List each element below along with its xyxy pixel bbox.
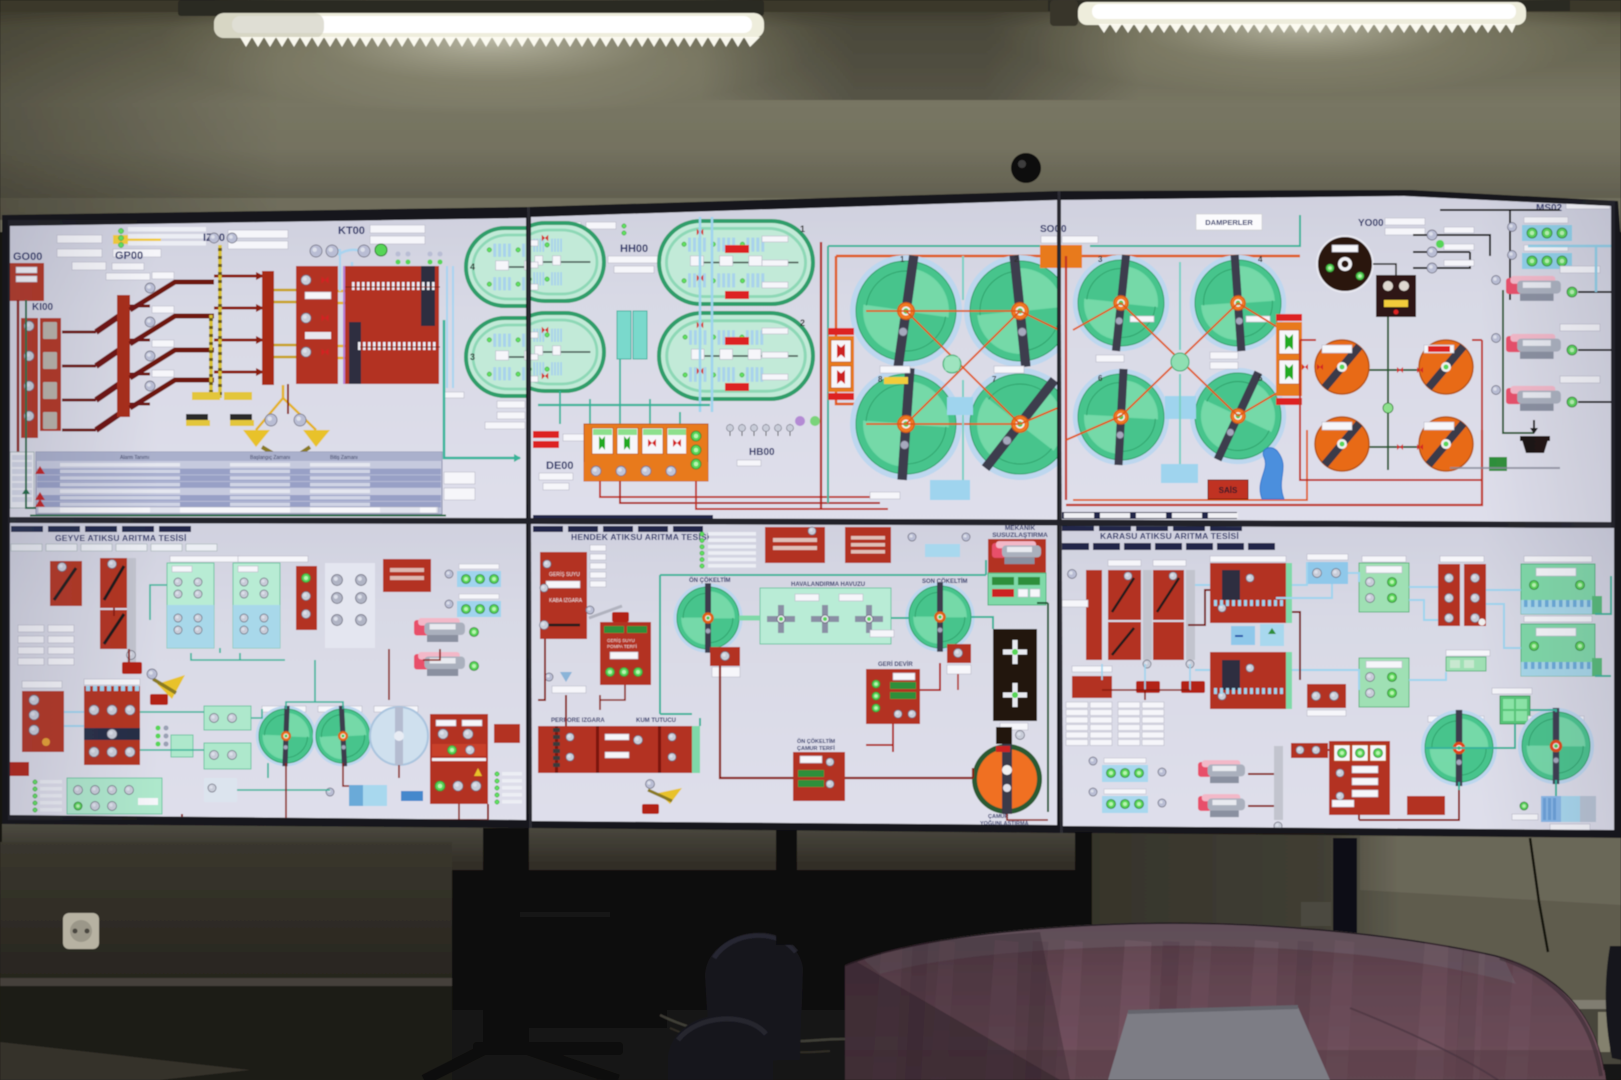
svg-text:KT00: KT00 <box>338 225 365 237</box>
svg-text:1: 1 <box>800 224 805 234</box>
svg-text:DE00: DE00 <box>546 460 574 472</box>
svg-text:SAİS: SAİS <box>1219 486 1238 495</box>
svg-text:6: 6 <box>1098 374 1103 383</box>
svg-text:KARASU ATIKSU ARITMA TESİSİ: KARASU ATIKSU ARITMA TESİSİ <box>1100 531 1239 541</box>
svg-text:YO00: YO00 <box>1358 218 1384 229</box>
svg-text:GERİŞ SUYU: GERİŞ SUYU <box>607 637 635 643</box>
svg-text:3: 3 <box>470 352 475 362</box>
svg-text:7: 7 <box>992 375 997 384</box>
svg-text:4: 4 <box>1258 255 1263 264</box>
svg-text:ÇAMUR TERFİ: ÇAMUR TERFİ <box>797 745 835 752</box>
svg-text:KUM TUTUCU: KUM TUTUCU <box>636 718 676 724</box>
svg-text:HAVALANDIRMA HAVUZU: HAVALANDIRMA HAVUZU <box>791 582 865 588</box>
svg-text:HH00: HH00 <box>620 243 648 255</box>
svg-text:2: 2 <box>1014 255 1019 264</box>
svg-text:SUSUZLAŞTIRMA: SUSUZLAŞTIRMA <box>992 532 1048 539</box>
svg-text:PERFORE IZGARA: PERFORE IZGARA <box>551 718 605 724</box>
svg-text:4: 4 <box>470 262 475 272</box>
svg-text:Başlangıç Zamanı: Başlangıç Zamanı <box>250 455 290 461</box>
svg-text:POMPA TERFİ: POMPA TERFİ <box>607 643 637 649</box>
svg-text:ÇAMUR: ÇAMUR <box>988 814 1008 820</box>
svg-text:Bitiş Zamanı: Bitiş Zamanı <box>330 455 358 461</box>
svg-text:ÖN ÇÖKELTİM: ÖN ÇÖKELTİM <box>797 738 836 745</box>
svg-text:GERİŞ SUYU: GERİŞ SUYU <box>549 571 580 578</box>
svg-text:HENDEK ATIKSU ARITMA TESİSİ: HENDEK ATIKSU ARITMA TESİSİ <box>571 532 709 542</box>
svg-text:GERİ DEVİR: GERİ DEVİR <box>878 661 913 668</box>
svg-text:8: 8 <box>878 375 883 384</box>
svg-text:3: 3 <box>1098 255 1103 264</box>
svg-text:ÖN ÇÖKELTİM: ÖN ÇÖKELTİM <box>689 577 731 584</box>
svg-text:KABA IZGARA: KABA IZGARA <box>549 598 583 604</box>
svg-text:0: 0 <box>1061 224 1067 235</box>
svg-text:2: 2 <box>800 318 805 328</box>
svg-text:5: 5 <box>1258 374 1263 383</box>
svg-text:DAMPERLER: DAMPERLER <box>1205 218 1253 227</box>
svg-text:1: 1 <box>900 255 905 264</box>
svg-text:HB00: HB00 <box>749 447 775 458</box>
